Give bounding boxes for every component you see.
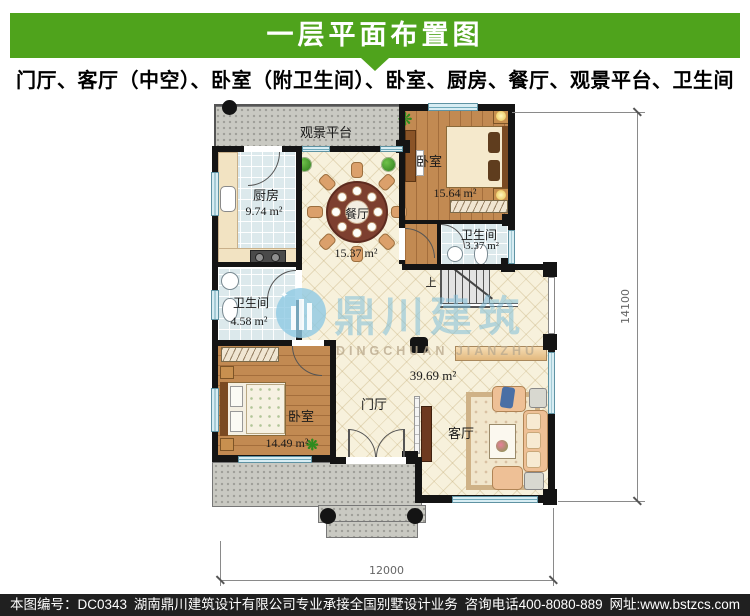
dim-ext-top-right [512, 112, 645, 113]
footer-website: 网址:www.bstzcs.com [609, 594, 740, 616]
bedroom-bl-wardrobe [221, 347, 279, 362]
porch-step-2 [326, 521, 418, 538]
sofa-cushion [526, 432, 541, 449]
side-table [529, 388, 547, 408]
window [211, 388, 219, 432]
room-area-dining: 15.37 m² [335, 246, 378, 261]
stairs-up-label: 上 [426, 274, 437, 290]
wall-post [543, 489, 557, 505]
door-leaf [348, 429, 350, 457]
outside-patch [509, 100, 555, 264]
room-area-bedroom-tr: 15.64 m² [434, 186, 477, 201]
kitchen-sink [220, 186, 236, 212]
foyer-partition [414, 396, 420, 454]
platform-rail-top [214, 104, 408, 106]
wall [405, 220, 509, 224]
dim-line-bottom [220, 580, 553, 581]
footer-serial: 本图编号：DC0343 [10, 594, 127, 616]
sofa-cushion [526, 451, 541, 468]
table-flowers [496, 440, 508, 452]
bed-tr [446, 126, 510, 188]
footer-phone: 咨询电话400-8080-889 [465, 594, 603, 616]
plant-icon [382, 158, 395, 171]
dim-line-right [637, 112, 638, 502]
wall-post [543, 334, 557, 350]
chair [307, 206, 323, 218]
wall [402, 264, 548, 270]
wall [330, 340, 336, 464]
bath-tr-basin [447, 246, 463, 262]
nightstand [220, 366, 234, 379]
wall-post [543, 262, 557, 277]
bed-tr-pillow [488, 132, 500, 153]
lamp [496, 190, 506, 200]
dim-width-label: 12000 [369, 564, 404, 577]
window [380, 146, 403, 152]
room-label-bedroom-bl: 卧室 [288, 406, 314, 425]
window [211, 290, 219, 320]
chaise [492, 466, 523, 490]
window [428, 103, 478, 111]
room-area-kitchen: 9.74 m² [246, 204, 283, 219]
room-label-kitchen: 厨房 [253, 185, 279, 204]
room-label-foyer: 门厅 [361, 394, 387, 413]
lamp [496, 111, 506, 121]
plate [352, 228, 362, 238]
window [302, 146, 330, 152]
porch-floor [212, 462, 422, 507]
door-gap [296, 270, 302, 300]
staircase [440, 268, 490, 308]
sideboard [455, 346, 547, 361]
bath-left-basin [221, 272, 239, 290]
platform-rail-left [214, 104, 216, 148]
wall-white-segment [548, 277, 555, 334]
window [452, 496, 538, 503]
dim-height-label: 14100 [619, 289, 632, 324]
bedroom-tr-closet [450, 200, 508, 213]
room-label-dining: 餐厅 [345, 205, 369, 222]
side-table [524, 472, 544, 490]
bed-bl-headboard [220, 382, 228, 436]
nightstand [220, 438, 234, 451]
floor-plan: ❊ ❋ [0, 0, 750, 594]
plate [373, 207, 383, 217]
plate [331, 207, 341, 217]
stove-burner [255, 253, 264, 262]
room-label-bedroom-tr: 卧室 [416, 151, 442, 170]
room-label-platform: 观景平台 [300, 122, 352, 141]
porch-column-left [320, 508, 336, 524]
room-area-bath-left: 4.58 m² [231, 314, 268, 329]
porch-column-right [407, 508, 423, 524]
wall [212, 262, 302, 267]
room-area-bath-tr: 3.37 m² [465, 240, 499, 252]
dim-ext-bottom-right [558, 501, 645, 502]
window [211, 172, 219, 216]
dim-ext-bottom-right2 [553, 508, 554, 586]
footer-company: 湖南鼎川建筑设计有限公司专业承接全国别墅设计业务 [134, 594, 458, 616]
bed-bl-pillow [230, 386, 243, 407]
wall [296, 146, 302, 346]
hall-area-label: 39.69 m² [410, 368, 457, 384]
tv-cabinet [421, 406, 432, 462]
stair-rail [440, 303, 518, 307]
door-leaf [403, 429, 405, 457]
room-label-bath-left: 卫生间 [233, 294, 269, 311]
sofa-cushion [526, 413, 541, 430]
floor-feature [410, 337, 428, 353]
bed-bl-pillow [230, 411, 243, 432]
footer-bar: 本图编号：DC0343 湖南鼎川建筑设计有限公司专业承接全国别墅设计业务 咨询电… [0, 594, 750, 616]
bed-tr-pillow [488, 160, 500, 181]
room-area-bedroom-bl: 14.49 m² [266, 436, 309, 451]
bed-bl-blanket [246, 384, 285, 434]
floor-plan-page: 一层平面布置图 门厅、客厅（中空）、卧室（附卫生间）、卧室、厨房、餐厅、观景平台… [0, 0, 750, 616]
chair [351, 162, 363, 178]
window [508, 230, 515, 264]
platform-column [222, 100, 237, 115]
room-label-living: 客厅 [448, 423, 474, 442]
entry-door-gap [346, 457, 406, 464]
wall-post [502, 214, 515, 226]
stove-burner [271, 253, 280, 262]
window [238, 456, 312, 463]
window [548, 352, 555, 414]
bedroom-tr-wardrobe [405, 130, 416, 182]
plate [352, 186, 362, 196]
